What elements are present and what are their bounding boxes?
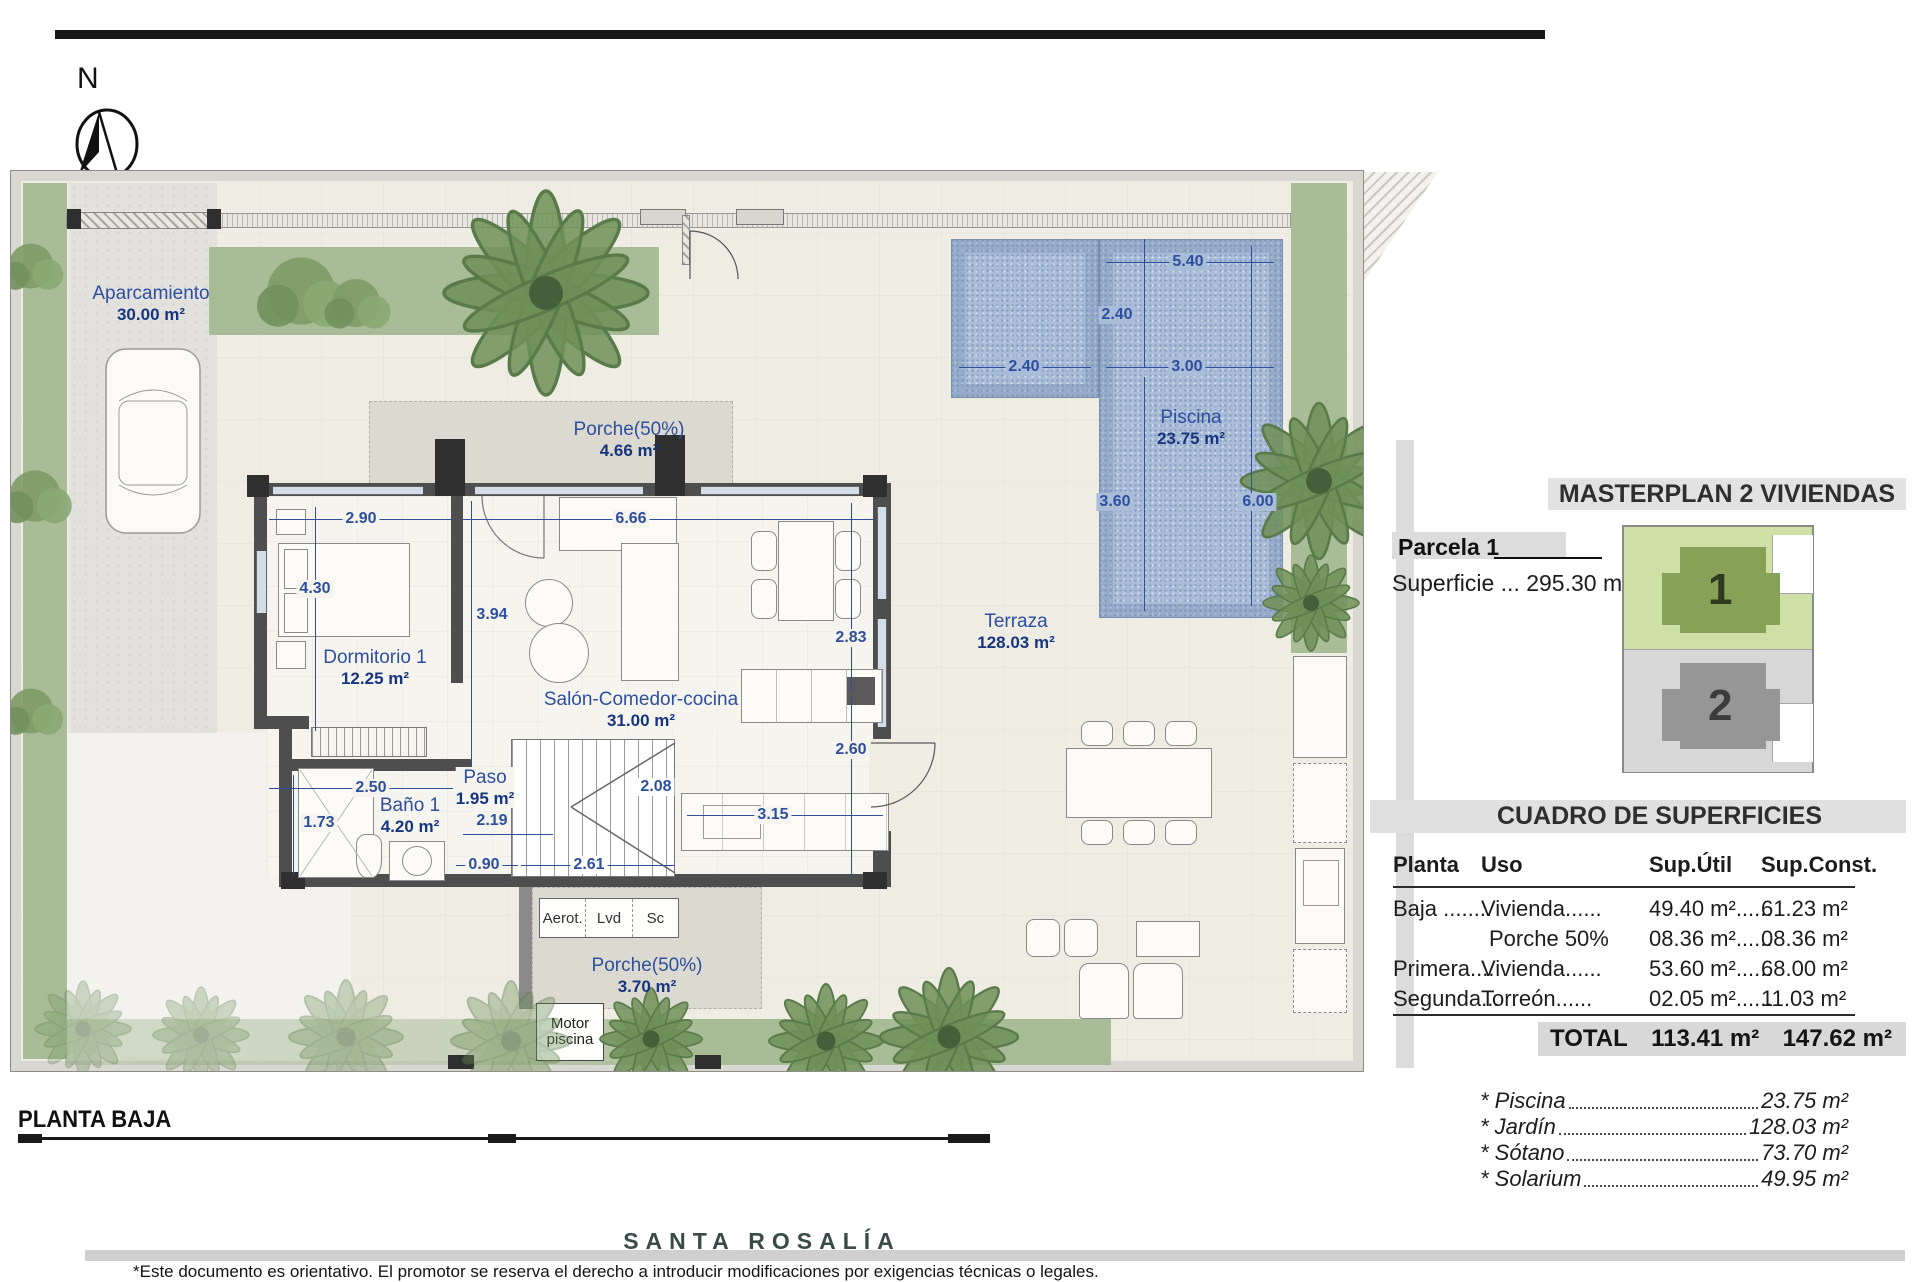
side-table — [529, 623, 589, 683]
wall-left-lower — [279, 716, 292, 887]
cell: 53.60 m²...... — [1649, 954, 1761, 984]
cell: 02.05 m²...... — [1649, 984, 1761, 1014]
dotted-leader — [1584, 1185, 1758, 1187]
pillar — [247, 475, 269, 497]
title-rule-cap — [948, 1134, 990, 1143]
chair — [835, 531, 861, 571]
extra-label: * Solarium — [1480, 1166, 1581, 1192]
room-area: 4.66 m² — [574, 441, 685, 461]
room-label-paso: Paso 1.95 m² — [456, 767, 515, 808]
room-name: Terraza — [984, 611, 1047, 632]
dim-line — [463, 519, 873, 520]
surfaces-title: CUADRO DE SUPERFICIES — [1497, 802, 1822, 831]
room-label-piscina: Piscina 23.75 m² — [1157, 407, 1225, 448]
extra-value: 128.03 m² — [1749, 1114, 1848, 1140]
cell: Vivienda...... — [1481, 894, 1649, 924]
nightstand — [276, 509, 306, 535]
dimension-label: 3.15 — [754, 806, 791, 824]
dimension-label: 2.08 — [637, 778, 674, 796]
extra-value: 23.75 m² — [1761, 1088, 1848, 1114]
col-header: Sup.Útil — [1649, 850, 1761, 880]
floor-plan: Aerot. Lvd Sc Motor piscina — [10, 170, 1364, 1072]
window — [877, 507, 887, 599]
gate-pillar — [207, 209, 221, 229]
low-table — [1136, 921, 1200, 957]
room-name: Porche(50%) — [592, 955, 703, 976]
title-rule-cap — [488, 1134, 516, 1143]
dimension-label: 3.94 — [473, 606, 510, 624]
porch-pillar — [435, 439, 465, 496]
garden-strip-left — [23, 183, 67, 1059]
chair — [835, 579, 861, 619]
extra-label: * Piscina — [1480, 1088, 1566, 1114]
room-label-salon: Salón-Comedor-cocina 31.00 m² — [544, 689, 738, 730]
dotted-leader — [1567, 1159, 1758, 1161]
dimension-label: 3.00 — [1168, 358, 1205, 376]
col-header: Sup.Const. — [1761, 850, 1853, 880]
title-rule-cap — [18, 1134, 42, 1143]
dimension-label: 2.19 — [473, 812, 510, 830]
sink-unit — [703, 805, 761, 839]
dimension-label: 6.00 — [1239, 493, 1276, 511]
room-name: Salón-Comedor-cocina — [544, 689, 738, 710]
dimension-label: 2.90 — [342, 510, 379, 528]
chair — [1165, 721, 1197, 746]
terrace-table — [1066, 748, 1212, 818]
chair — [1081, 721, 1113, 746]
wardrobe — [311, 727, 427, 757]
pool-motor-label: Motor piscina — [537, 1016, 603, 1049]
parking-paving — [69, 183, 217, 733]
extra-item: * Piscina 23.75 m² — [1480, 1088, 1848, 1114]
room-name: Dormitorio 1 — [323, 647, 426, 668]
room-label-terraza: Terraza 128.03 m² — [977, 611, 1055, 652]
dimension-label: 6.66 — [612, 510, 649, 528]
top-rule — [55, 30, 1545, 39]
window — [701, 486, 859, 495]
total-const: 147.62 m² — [1783, 1025, 1892, 1053]
cell: 68.00 m² — [1761, 954, 1853, 984]
cell: Vivienda...... — [1481, 954, 1649, 984]
room-area: 4.20 m² — [380, 817, 440, 837]
chair — [1165, 820, 1197, 845]
footer-bar — [85, 1250, 1905, 1261]
aerothermal-unit: Aerot. — [540, 899, 586, 937]
pool-motor-box: Motor piscina — [536, 1003, 604, 1061]
dotted-leader — [1569, 1107, 1759, 1109]
table-rule — [1393, 886, 1855, 888]
parcel-label: Parcela 1 — [1398, 534, 1499, 561]
plan-title: PLANTA BAJA — [18, 1106, 171, 1134]
extras-list: * Piscina 23.75 m² * Jardín 128.03 m² * … — [1480, 1088, 1848, 1192]
garden-strip-right — [1291, 183, 1347, 653]
room-name: Piscina — [1160, 407, 1221, 428]
chair — [1123, 820, 1155, 845]
total-bar: TOTAL 113.41 m² 147.62 m² — [1538, 1022, 1906, 1056]
room-area: 23.75 m² — [1157, 429, 1225, 449]
side-storage — [1293, 763, 1347, 843]
dim-line — [463, 834, 553, 835]
surfaces-table-body: Baja ........ Vivienda...... 49.40 m²...… — [1393, 894, 1853, 1014]
cell: Baja ........ — [1393, 894, 1481, 924]
room-label-aparcamiento: Aparcamiento 30.00 m² — [92, 283, 209, 324]
pedestrian-gate-post — [736, 209, 784, 225]
dining-table — [778, 521, 834, 621]
pedestrian-gate-post — [640, 209, 686, 225]
dim-line — [851, 503, 852, 691]
chair — [1123, 721, 1155, 746]
cell: Segunda... — [1393, 984, 1481, 1014]
room-area: 12.25 m² — [323, 669, 426, 689]
room-label-dormitorio: Dormitorio 1 12.25 m² — [323, 647, 426, 688]
nightstand — [276, 641, 306, 669]
dimension-label: 5.40 — [1169, 253, 1206, 271]
dim-line — [1251, 246, 1252, 606]
extra-label: * Jardín — [1480, 1114, 1556, 1140]
total-util: 113.41 m² — [1651, 1025, 1759, 1053]
cell: 08.36 m²...... — [1649, 924, 1761, 954]
dim-line — [471, 501, 472, 791]
driveway-gate — [77, 212, 215, 229]
lounge-chair — [1026, 919, 1060, 957]
dimension-label: 1.73 — [300, 814, 337, 832]
wall-interior — [451, 483, 463, 683]
gate-pillar — [67, 209, 81, 229]
pillar — [863, 475, 887, 497]
side-table — [525, 579, 573, 627]
cell: 11.03 m² — [1761, 984, 1853, 1014]
window — [475, 486, 643, 495]
extra-value: 49.95 m² — [1761, 1166, 1848, 1192]
storage-inner — [1303, 860, 1339, 906]
plot2-number: 2 — [1708, 681, 1732, 731]
dim-line — [315, 507, 316, 731]
room-name: Paso — [463, 767, 506, 788]
extra-label: * Sótano — [1480, 1140, 1564, 1166]
cell — [1393, 924, 1481, 954]
room-area: 1.95 m² — [456, 789, 515, 809]
parcel-underline — [1494, 557, 1602, 559]
dimension-label: 2.40 — [1098, 306, 1135, 324]
cell: Porche 50% — [1481, 924, 1649, 954]
room-area: 30.00 m² — [92, 305, 209, 325]
pillow — [284, 593, 308, 633]
dim-line — [293, 775, 294, 875]
cell: Torreón...... — [1481, 984, 1649, 1014]
dimension-label: 0.90 — [465, 856, 502, 874]
parcel-superficie: Superficie ... 295.30 m² — [1392, 570, 1630, 597]
dimension-label: 4.30 — [296, 580, 333, 598]
dimension-label: 2.83 — [832, 629, 869, 647]
col-header: Planta — [1393, 850, 1481, 880]
pillar — [448, 1055, 474, 1069]
sc-unit: Sc — [633, 899, 678, 937]
pedestrian-gate-leaf — [682, 215, 690, 265]
dimension-label: 3.60 — [1096, 493, 1133, 511]
sun-lounger — [1079, 963, 1129, 1019]
side-storage — [1293, 949, 1347, 1013]
room-name: Aparcamiento — [92, 283, 209, 304]
room-area: 3.70 m² — [592, 977, 703, 997]
masterplan-title-bar: MASTERPLAN 2 VIVIENDAS — [1548, 478, 1906, 510]
extra-item: * Sótano 73.70 m² — [1480, 1140, 1848, 1166]
cell: Primera.... — [1393, 954, 1481, 984]
sofa-chaise — [621, 543, 679, 681]
dim-line — [1144, 239, 1145, 367]
dotted-leader — [1559, 1133, 1746, 1135]
sun-lounger — [1133, 963, 1183, 1019]
street-corner-paving — [1362, 172, 1438, 284]
plot1-number: 1 — [1708, 565, 1732, 615]
total-label: TOTAL — [1550, 1025, 1628, 1053]
dimension-label: 2.60 — [832, 741, 869, 759]
room-area: 31.00 m² — [544, 711, 738, 731]
pillar — [863, 872, 887, 889]
disclaimer: *Este documento es orientativo. El promo… — [133, 1262, 1099, 1282]
dimension-label: 2.61 — [570, 856, 607, 874]
window — [273, 486, 423, 495]
wall-porch-bottom — [519, 887, 532, 1009]
room-name: Porche(50%) — [574, 419, 685, 440]
room-label-bano: Baño 1 4.20 m² — [380, 795, 440, 836]
chair — [751, 579, 777, 619]
extra-item: * Jardín 128.03 m² — [1480, 1114, 1848, 1140]
cell: 61.23 m² — [1761, 894, 1853, 924]
room-label-porche-bottom: Porche(50%) 3.70 m² — [592, 955, 703, 996]
masterplan-inset: 1 2 — [1622, 525, 1814, 773]
chair — [751, 531, 777, 571]
sink-bowl — [402, 846, 432, 876]
table-rule — [1393, 1014, 1855, 1016]
cell: 08.36 m² — [1761, 924, 1853, 954]
pillar — [695, 1055, 721, 1069]
room-area: 128.03 m² — [977, 633, 1055, 653]
extra-value: 73.70 m² — [1761, 1140, 1848, 1166]
side-storage — [1293, 656, 1347, 758]
north-label: N — [77, 62, 99, 96]
surfaces-title-bar: CUADRO DE SUPERFICIES — [1370, 800, 1906, 833]
dimension-label: 2.40 — [1005, 358, 1042, 376]
utility-boxes: Aerot. Lvd Sc — [539, 898, 679, 938]
surfaces-table-header: Planta Uso Sup.Útil Sup.Const. — [1393, 850, 1853, 880]
dim-line — [851, 697, 852, 877]
toilet — [356, 834, 382, 878]
cell: 49.40 m²...... — [1649, 894, 1761, 924]
chair — [1081, 820, 1113, 845]
dim-line — [1144, 377, 1145, 611]
room-name: Baño 1 — [380, 795, 440, 816]
col-header: Uso — [1481, 850, 1649, 880]
garden-strip-top — [209, 247, 659, 335]
laundry-unit: Lvd — [586, 899, 632, 937]
room-label-porche-top: Porche(50%) 4.66 m² — [574, 419, 685, 460]
extra-item: * Solarium 49.95 m² — [1480, 1166, 1848, 1192]
lounge-chair — [1064, 919, 1098, 957]
masterplan-title: MASTERPLAN 2 VIVIENDAS — [1559, 480, 1895, 509]
window — [256, 551, 267, 613]
